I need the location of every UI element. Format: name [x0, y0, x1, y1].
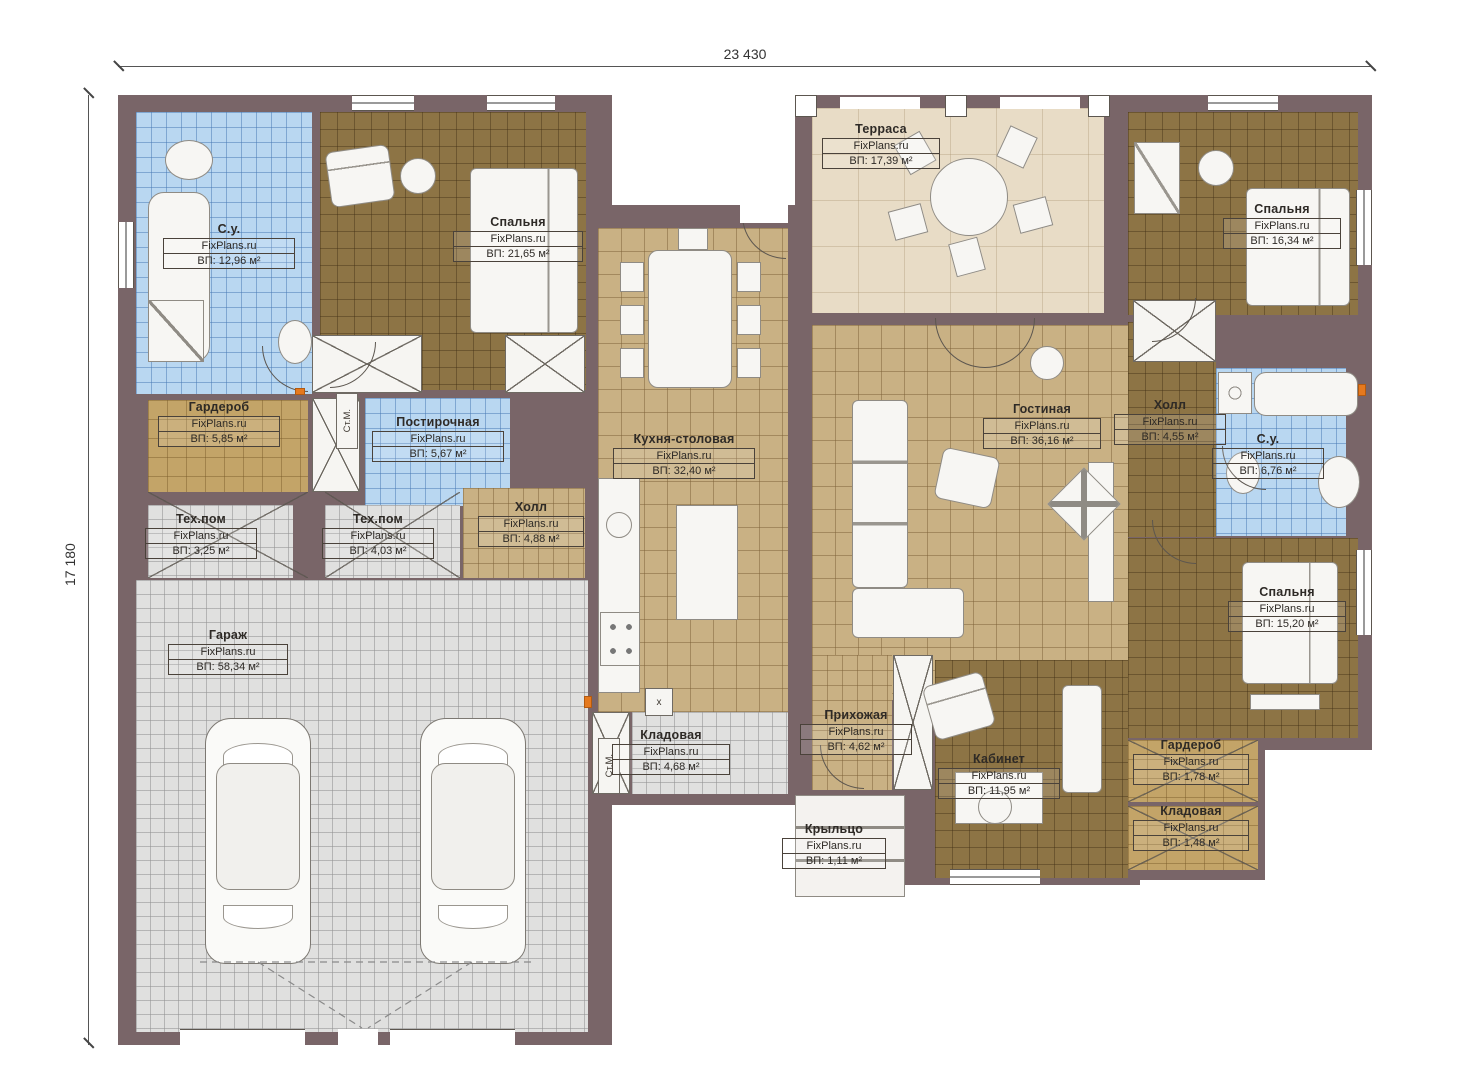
room-label-tech1: Тех.пом FixPlans.ruВП: 3,25 м² [145, 512, 257, 559]
room-label-su2: С.у. FixPlans.ruВП: 6,76 м² [1212, 432, 1324, 479]
room-label-bedroom3: Спальня FixPlans.ruВП: 15,20 м² [1228, 585, 1346, 632]
dimension-line-left [88, 95, 89, 1045]
room-label-su1: С.у. FixPlans.ruВП: 12,96 м² [163, 222, 295, 269]
window [118, 222, 134, 288]
window [950, 869, 1040, 885]
room-label-pantry1: Кладовая FixPlans.ruВП: 4,68 м² [612, 728, 730, 775]
room-label-hall1: Холл FixPlans.ruВП: 4,88 м² [478, 500, 584, 547]
washer-label: Ст.М. [336, 393, 358, 449]
dimension-line-top [118, 66, 1372, 67]
room-label-wardrobe2: Гардероб FixPlans.ruВП: 1,78 м² [1133, 738, 1249, 785]
room-label-tech2: Тех.пом FixPlans.ruВП: 4,03 м² [322, 512, 434, 559]
window [487, 95, 555, 111]
room-label-kitchen: Кухня-столовая FixPlans.ruВП: 32,40 м² [613, 432, 755, 479]
dimension-left-label: 17 180 [62, 520, 78, 610]
room-label-garage: Гараж FixPlans.ruВП: 58,34 м² [168, 628, 288, 675]
entrance-door [740, 205, 788, 223]
terrace-post [795, 95, 817, 117]
terrace-opening [1000, 97, 1080, 109]
back-door [338, 1029, 378, 1045]
room-label-bedroom2: Спальня FixPlans.ruВП: 16,34 м² [1223, 202, 1341, 249]
socket [295, 388, 305, 395]
boiler-marker: х [645, 688, 673, 716]
room-label-hall2: Холл FixPlans.ruВП: 4,55 м² [1114, 398, 1226, 445]
room-label-laundry: Постирочная FixPlans.ruВП: 5,67 м² [372, 415, 504, 462]
room-label-terrace: Терраса FixPlans.ruВП: 17,39 м² [822, 122, 940, 169]
window [1356, 550, 1372, 635]
terrace-post [1088, 95, 1110, 117]
room-label-bedroom1: Спальня FixPlans.ruВП: 21,65 м² [453, 215, 583, 262]
floor-plan: 23 430 17 180 [0, 0, 1474, 1080]
room-label-wardrobe1: Гардероб FixPlans.ruВП: 5,85 м² [158, 400, 280, 447]
garage-door [390, 1029, 515, 1045]
room-label-living: Гостиная FixPlans.ruВП: 36,16 м² [983, 402, 1101, 449]
terrace-post [945, 95, 967, 117]
room-label-office: Кабинет FixPlans.ruВП: 11,95 м² [938, 752, 1060, 799]
socket [584, 696, 592, 708]
room-label-porch: Крыльцо FixPlans.ruВП: 1,11 м² [782, 822, 886, 869]
room-label-entry: Прихожая FixPlans.ruВП: 4,62 м² [800, 708, 912, 755]
garage-door [180, 1029, 305, 1045]
window [1208, 95, 1278, 111]
socket [1358, 384, 1366, 396]
terrace-opening [840, 97, 920, 109]
window [1356, 190, 1372, 265]
dimension-top-label: 23 430 [700, 46, 790, 62]
room-label-pantry2: Кладовая FixPlans.ruВП: 1,48 м² [1133, 804, 1249, 851]
window [352, 95, 414, 111]
